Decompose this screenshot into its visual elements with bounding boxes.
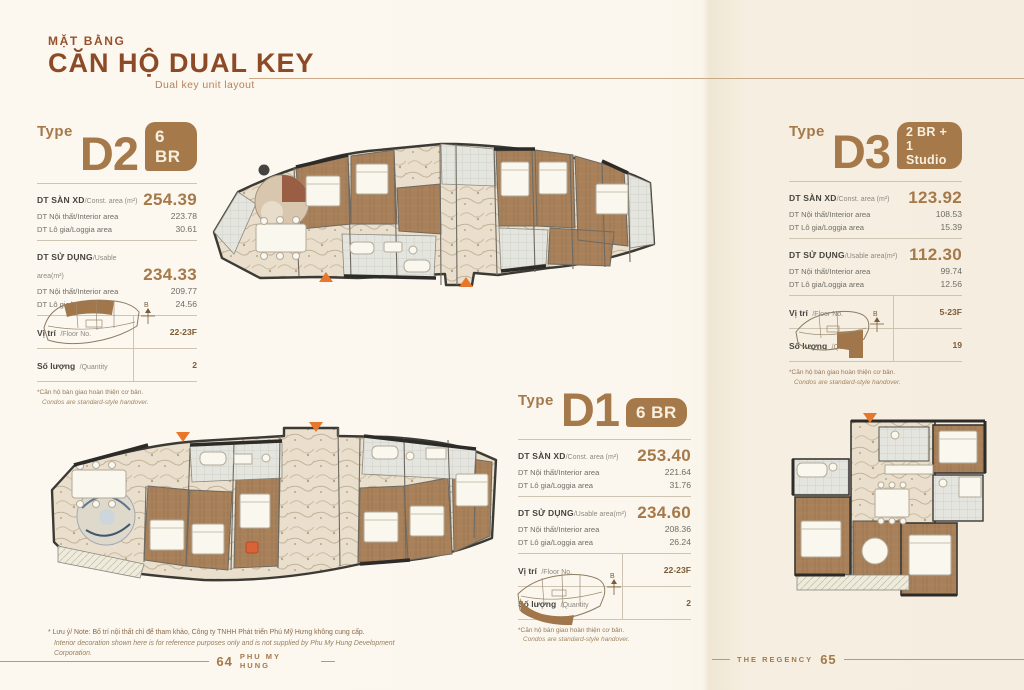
row-label-en: /Interior area [827,210,870,219]
page-header: MẶT BẰNG CĂN HỘ DUAL KEY Dual key unit l… [48,34,315,91]
const-area-group: DT SÀN XD/Const. area (m²) 123.92 DT Nội… [789,182,962,239]
row-label-vi: DT Lô gia [518,538,551,547]
interior-value: 223.78 [171,211,197,221]
row-label-en: /Interior area [556,468,599,477]
row-label-en: /Const. area (m²) [85,198,138,205]
balcony-area [797,575,909,590]
key-plan-d1: B [512,568,642,634]
footnote-en: Condos are standard-style handover. [518,635,691,645]
loggia-value: 31.76 [669,480,691,490]
row-label-vi: DT SÀN XD [518,451,566,461]
row-label-vi: DT SÀN XD [789,193,837,203]
row-label-en: /Interior area [556,525,599,534]
row-label-en: /Quantity [80,364,108,371]
row-label-vi: DT Nội thất [518,468,556,477]
north-compass-icon: B [607,573,621,595]
key-plan-highlight [520,598,574,625]
loggia-value: 12.56 [940,279,962,289]
row-label-vi: DT Lô gia [518,481,551,490]
badge-line-1: 2 BR + [906,125,953,139]
row-label-en: /Usable area(m²) [845,253,898,260]
row-label-en: /Loggia area [551,538,593,547]
handover-footnote: *Căn hộ bàn giao hoàn thiện cơ bản. Cond… [37,388,197,408]
row-label-vi: DT Lô gia [789,280,822,289]
brochure-spread: MẶT BẰNG CĂN HỘ DUAL KEY Dual key unit l… [0,0,1024,690]
const-area-group: DT SÀN XD/Const. area (m²) 253.40 DT Nội… [518,440,691,497]
usable-area-value: 234.33 [143,266,197,283]
row-label-vi: DT Nội thất [789,210,827,219]
loggia-value: 15.39 [940,222,962,232]
interior-value: 108.53 [936,209,962,219]
loggia-value: 30.61 [175,224,197,234]
footer-brand: PHU MY HUNG [240,652,314,670]
footnote-en: Condos are standard-style handover. [37,398,197,408]
row-label-en: /Loggia area [70,225,112,234]
row-label-vi: DT SỬ DỤNG [789,250,845,260]
unit-d3-header: Type D3 2 BR + 1 Studio [789,122,962,172]
row-label-en: /Interior area [827,267,870,276]
floorplan-d1 [28,418,508,613]
unit-type-label: Type [518,392,554,409]
page-number-right: 65 [820,652,836,667]
footer-project: THE REGENCY [737,655,813,664]
const-area-group: DT SÀN XD/Const. area (m²) 254.39 DT Nội… [37,184,197,241]
unit-name: D2 [80,135,138,174]
loggia-value: 26.24 [669,537,691,547]
badge-line-2: 1 Studio [906,139,953,167]
footer-rule [321,661,335,662]
bedroom-badge: 6 BR [145,122,197,171]
header-rule [249,78,1024,79]
accent-chair [246,542,258,553]
footer-rule [712,659,730,660]
bedroom-badge: 6 BR [626,398,687,427]
unit-type-label: Type [789,123,825,140]
interior-value: 208.36 [665,524,691,534]
note-vi: * Lưu ý/ Note: Bố trí nội thất chỉ để th… [48,628,408,639]
unit-name: D1 [561,391,619,430]
row-label-vi: DT Nội thất [518,525,556,534]
svg-text:B: B [873,311,878,318]
row-label-vi: DT Nội thất [37,287,75,296]
usable-area-group: DT SỬ DỤNG/Usable area(m²) 112.30 DT Nội… [789,239,962,296]
header-subtitle: Dual key unit layout [155,79,315,91]
footnote-vi: *Căn hộ bàn giao hoàn thiện cơ bản. [37,388,197,398]
row-label-vi: DT Nội thất [789,267,827,276]
key-plan-highlight [837,330,863,358]
unit-panel-d2: Type D2 6 BR DT SÀN XD/Const. area (m²) … [37,122,197,408]
badge-line-1: 6 BR [636,403,677,422]
svg-text:B: B [610,573,615,580]
page-number-left: 64 [216,654,232,669]
row-label-vi: DT Lô gia [789,223,822,232]
unit-name: D3 [832,133,890,172]
header-kicker: MẶT BẰNG [48,34,315,48]
const-area-value: 123.92 [908,189,962,206]
row-label-en: /Interior area [75,212,118,221]
row-label-en: /Loggia area [822,280,864,289]
row-label-en: /Const. area (m²) [566,454,619,461]
row-label-en: /Usable area(m²) [574,511,627,518]
interior-value: 221.64 [665,467,691,477]
row-label-vi: DT SỬ DỤNG [37,252,93,262]
row-label-en: /Const. area (m²) [837,196,890,203]
unit-d2-header: Type D2 6 BR [37,122,197,174]
footnote-en: Condos are standard-style handover. [789,378,962,388]
row-label-vi: DT Lô gia [37,225,70,234]
footer-rule [844,659,1024,660]
footer-left: 64 PHU MY HUNG [0,652,335,670]
footer-right: THE REGENCY 65 [712,652,1024,667]
floorplan-d2 [198,130,668,300]
interior-value: 209.77 [171,286,197,296]
bedroom-badge: 2 BR + 1 Studio [897,122,962,169]
badge-line-1: 6 BR [155,127,181,166]
north-compass-icon: B [141,302,155,324]
key-plan-d2: B [40,296,180,358]
footer-rule [0,661,209,662]
row-label-vi: DT Nội thất [37,212,75,221]
page-title: CĂN HỘ DUAL KEY [48,48,315,79]
floorplan-d3 [775,405,1005,610]
row-label-vi: DT SỬ DỤNG [518,508,574,518]
const-area-value: 254.39 [143,191,197,208]
row-label-en: /Loggia area [551,481,593,490]
interior-value: 99.74 [940,266,962,276]
unit-type-label: Type [37,123,73,140]
north-compass-icon: B [870,311,884,332]
row-label-en: /Interior area [75,287,118,296]
key-plan-d3: B [793,306,943,372]
const-area-value: 253.40 [637,447,691,464]
row-label-vi: Số lượng [37,361,75,371]
row-label-vi: DT SÀN XD [37,195,85,205]
row-label-en: /Loggia area [822,223,864,232]
svg-text:B: B [144,302,149,309]
usable-area-group: DT SỬ DỤNG/Usable area(m²) 234.60 DT Nội… [518,497,691,554]
usable-area-value: 234.60 [637,504,691,521]
usable-area-value: 112.30 [909,246,962,263]
unit-d1-header: Type D1 6 BR [518,391,691,430]
bath-area [879,427,929,461]
